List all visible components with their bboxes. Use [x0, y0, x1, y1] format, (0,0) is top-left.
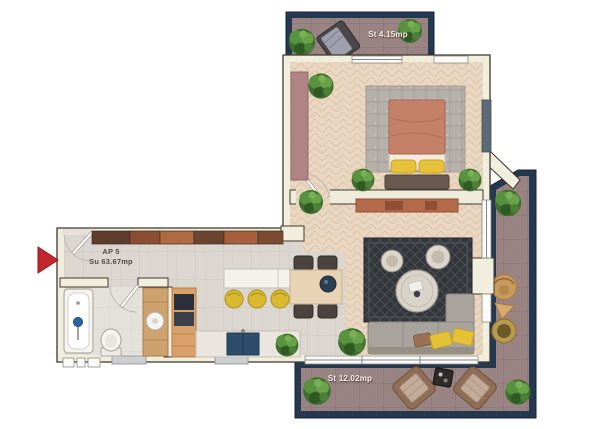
toilet: [101, 329, 121, 356]
bed: [385, 100, 449, 189]
round-planter: [492, 319, 516, 343]
bathroom-wall-right: [138, 278, 168, 287]
bar-stool: [248, 290, 266, 308]
floor-plan-canvas: St 4.15mp St 12.02mp: [0, 0, 600, 429]
coffee-table: [396, 270, 438, 312]
potted-plant: [303, 377, 331, 405]
bed-headboard: [385, 175, 449, 189]
bar-stool: [271, 290, 289, 308]
bed-pillow: [391, 160, 416, 173]
built-in-oven: [174, 294, 194, 310]
table-vase: [414, 291, 420, 297]
vent-window: [63, 358, 74, 367]
usable-area-label: Su 63.67mp: [89, 257, 133, 266]
side-table: [426, 245, 450, 269]
terrace-coffee-table: [433, 368, 454, 388]
vent-window: [77, 358, 85, 367]
sofa-chaise: [446, 294, 474, 326]
dining-chair: [294, 256, 313, 270]
potted-plant: [459, 169, 482, 192]
tv-sideboard: [356, 199, 458, 212]
dining-chair: [318, 304, 337, 318]
dining-chair: [318, 256, 337, 270]
potted-plant: [289, 29, 315, 55]
living-window-lower: [482, 294, 491, 322]
bar-stools: [225, 290, 289, 308]
wall-stub: [281, 226, 304, 241]
bed-blanket: [389, 100, 445, 154]
potted-plant: [495, 190, 521, 216]
potted-plant: [338, 328, 366, 356]
potted-plant: [308, 73, 333, 98]
bedroom-window: [434, 56, 468, 63]
bed-pillow: [419, 160, 444, 173]
side-table: [381, 250, 403, 272]
apartment-id-label: AP 5: [102, 247, 119, 256]
potted-plant: [352, 169, 375, 192]
potted-plant: [505, 379, 530, 404]
bathroom-window: [112, 356, 146, 364]
bedroom-side-window: [482, 100, 491, 152]
bathtub-drain: [76, 301, 80, 305]
bathroom-wall-left: [60, 278, 108, 287]
entrance-arrow-icon: [38, 247, 58, 273]
centerpiece-bowl: [320, 276, 336, 292]
vanity: [143, 288, 168, 356]
potted-plant: [276, 334, 299, 357]
bedroom-wardrobe: [291, 72, 308, 180]
hall-wardrobe: [92, 231, 283, 244]
floor-plan: St 4.15mp St 12.02mp: [0, 0, 600, 429]
terrace-top-label: St 4.15mp: [368, 30, 408, 39]
kitchen-sink: [227, 329, 259, 355]
potted-plant: [299, 190, 323, 214]
sink-faucet: [241, 329, 245, 333]
entrance-opening: [62, 229, 92, 235]
built-in-microwave: [174, 312, 194, 326]
dining-chair: [294, 304, 313, 318]
wicker-chair: [492, 275, 517, 300]
sofa-pillow: [413, 333, 432, 348]
bathtub-faucet: [74, 318, 83, 327]
vent-window: [88, 358, 100, 367]
sofa-back: [368, 347, 474, 354]
kitchen-tall-cabinet: [172, 288, 196, 357]
bar-stool: [225, 290, 243, 308]
terrace-bottom-label: St 12.02mp: [328, 374, 372, 383]
